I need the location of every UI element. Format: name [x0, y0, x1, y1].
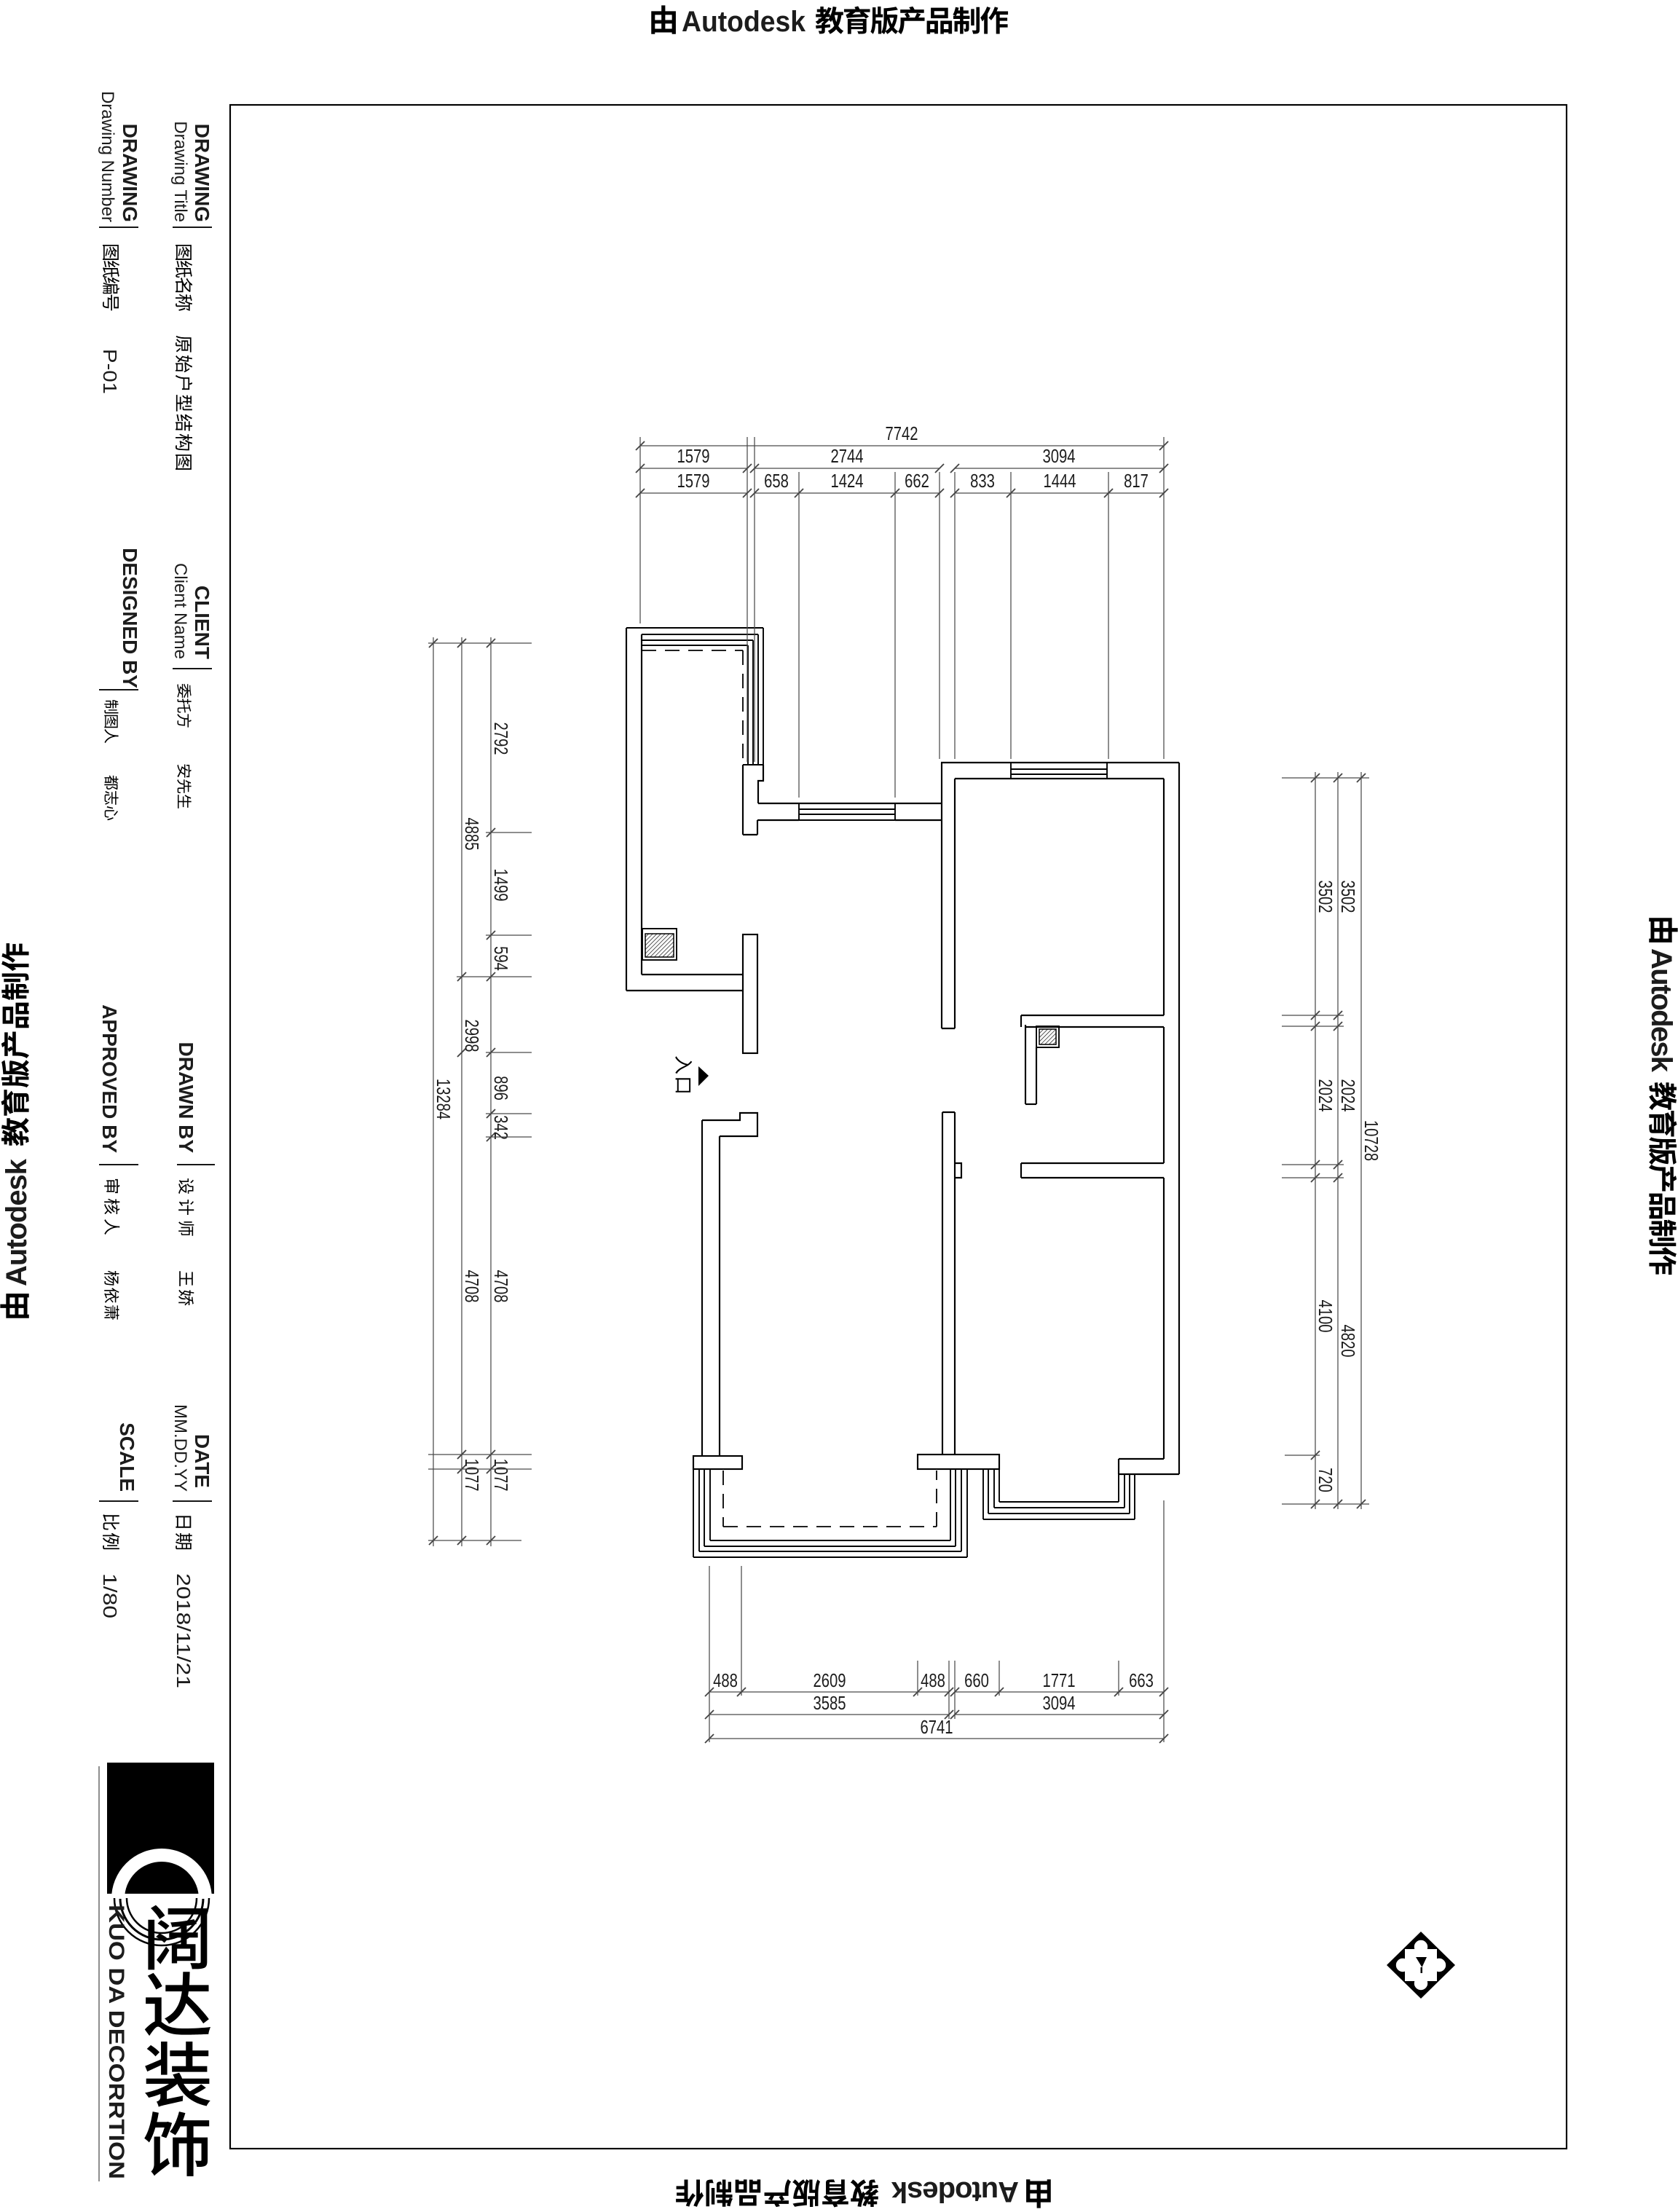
- svg-text:Autodesk: Autodesk: [682, 6, 806, 38]
- svg-text:Autodesk: Autodesk: [891, 2176, 1019, 2208]
- svg-text:7742: 7742: [885, 423, 918, 444]
- svg-text:DESIGNED BY: DESIGNED BY: [119, 548, 141, 688]
- svg-text:1499: 1499: [490, 868, 511, 901]
- svg-text:DRAWN BY: DRAWN BY: [175, 1042, 197, 1154]
- svg-text:4708: 4708: [461, 1270, 482, 1302]
- svg-text:660: 660: [964, 1670, 989, 1691]
- svg-text:MM.DD.YY: MM.DD.YY: [170, 1404, 190, 1492]
- svg-text:4100: 4100: [1315, 1299, 1336, 1332]
- svg-text:488: 488: [713, 1670, 738, 1691]
- svg-text:1444: 1444: [1043, 471, 1076, 492]
- svg-text:2609: 2609: [813, 1670, 846, 1691]
- svg-text:4708: 4708: [490, 1270, 511, 1302]
- svg-text:1077: 1077: [461, 1458, 482, 1491]
- svg-text:1/80: 1/80: [99, 1573, 121, 1618]
- svg-text:3094: 3094: [1042, 446, 1075, 467]
- svg-text:896: 896: [490, 1076, 511, 1101]
- svg-text:Client Name: Client Name: [170, 563, 190, 659]
- svg-text:663: 663: [1129, 1670, 1154, 1691]
- svg-text:1579: 1579: [677, 446, 709, 467]
- svg-text:1077: 1077: [490, 1458, 511, 1491]
- svg-text:1771: 1771: [1042, 1670, 1075, 1691]
- svg-text:2018/11/21: 2018/11/21: [173, 1573, 194, 1688]
- svg-text:3502: 3502: [1337, 880, 1358, 913]
- svg-text:P-01: P-01: [99, 349, 121, 394]
- svg-text:833: 833: [970, 471, 995, 492]
- svg-text:662: 662: [905, 471, 929, 492]
- svg-text:817: 817: [1124, 471, 1149, 492]
- svg-text:658: 658: [764, 471, 789, 492]
- svg-text:3585: 3585: [813, 1693, 846, 1714]
- svg-text:APPROVED BY: APPROVED BY: [98, 1004, 121, 1153]
- svg-text:2744: 2744: [830, 446, 863, 467]
- svg-text:6741: 6741: [920, 1717, 953, 1738]
- svg-text:DATE: DATE: [191, 1434, 213, 1488]
- svg-text:Drawing Title: Drawing Title: [170, 121, 190, 222]
- svg-text:DRAWING: DRAWING: [119, 124, 141, 222]
- svg-text:SCALE: SCALE: [116, 1422, 138, 1492]
- svg-text:720: 720: [1315, 1468, 1336, 1492]
- svg-text:2024: 2024: [1315, 1079, 1336, 1111]
- svg-text:DRAWING: DRAWING: [191, 124, 213, 222]
- svg-text:Autodesk: Autodesk: [1645, 948, 1677, 1073]
- svg-text:10728: 10728: [1360, 1120, 1382, 1161]
- svg-text:1424: 1424: [830, 471, 863, 492]
- svg-text:CLIENT: CLIENT: [191, 586, 213, 659]
- svg-text:1579: 1579: [677, 471, 709, 492]
- svg-text:2792: 2792: [490, 722, 511, 755]
- svg-text:4885: 4885: [461, 817, 482, 850]
- svg-text:2024: 2024: [1337, 1079, 1358, 1111]
- svg-text:KUO DA DECORRTION: KUO DA DECORRTION: [104, 1905, 128, 2179]
- svg-text:3094: 3094: [1042, 1693, 1075, 1714]
- svg-text:4820: 4820: [1337, 1324, 1358, 1357]
- svg-text:342: 342: [490, 1115, 511, 1140]
- svg-text:13284: 13284: [433, 1079, 454, 1119]
- svg-text:Autodesk: Autodesk: [1, 1158, 33, 1286]
- svg-text:594: 594: [490, 946, 511, 971]
- svg-text:Drawing Number: Drawing Number: [98, 91, 117, 222]
- svg-text:3502: 3502: [1315, 880, 1336, 913]
- svg-text:488: 488: [921, 1670, 945, 1691]
- svg-text:2998: 2998: [461, 1019, 482, 1052]
